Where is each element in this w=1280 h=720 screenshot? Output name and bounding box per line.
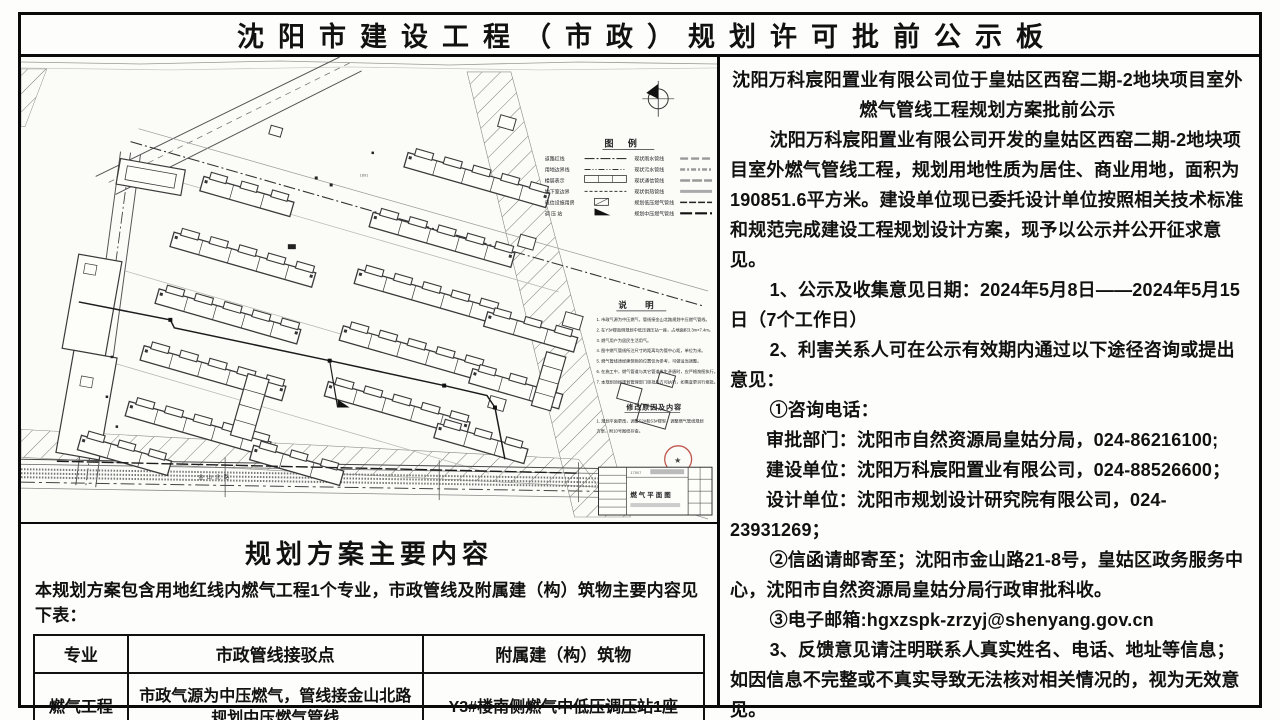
road-label: 金山北路 [198, 473, 232, 481]
notice-mail-address: ②信函请邮寄至；沈阳市金山路21-8号，皇姑区政务服务中心，沈阳市自然资源局皇姑… [730, 545, 1245, 605]
plan-table-header-row: 专业 市政管线接驳点 附属建（构）筑物 [34, 635, 704, 673]
notice-design-unit: 设计单位：沈阳市规划设计研究院有限公司，024-23931269； [730, 485, 1245, 545]
svg-text:电信设施用房: 电信设施用房 [545, 199, 575, 206]
site-plan-panel: 金山北路 [21, 57, 717, 524]
scan-edge-lines [21, 61, 717, 70]
plan-table-header-connection: 市政管线接驳点 [128, 635, 423, 673]
svg-text:楼层表示: 楼层表示 [545, 177, 565, 184]
svg-text:现状供热管线: 现状供热管线 [634, 188, 664, 195]
svg-text:现状污水管线: 现状污水管线 [634, 167, 664, 174]
plan-section-heading: 规划方案主要内容 [33, 534, 705, 571]
board-title: 沈阳市建设工程（市政）规划许可批前公示板 [21, 15, 1259, 57]
drawing-titleblock: ★ 17507 [599, 446, 713, 515]
svg-text:调 压 站: 调 压 站 [545, 210, 563, 217]
legend-right-labels: 现状雨水管线 现状污水管线 现状通信管线 现状供热管线 规划低压燃气管线 规划中… [634, 156, 674, 218]
notice-item-3: 3、反馈意见请注明联系人真实姓名、电话、地址等信息；如因信息不完整或不真实导致无… [730, 635, 1245, 720]
notice-board: 沈阳市建设工程（市政）规划许可批前公示板 [18, 12, 1262, 708]
survey-number-label: 1891 [360, 172, 370, 177]
site-plan-drawing: 金山北路 [21, 57, 717, 522]
map-legend: 图 例 道路红线 用地边界线 楼层表示 地下室边界 电信设施用房 调 压 站 [545, 138, 712, 218]
notice-board-page: 沈阳市建设工程（市政）规划许可批前公示板 [0, 0, 1280, 720]
map-revision: 修改原因及内容 1. 规划平面更改，调整S2#和S3#楼型，调整燃气管线规划 方… [597, 402, 704, 433]
legend-left-labels: 道路红线 用地边界线 楼层表示 地下室边界 电信设施用房 调 压 站 [545, 156, 575, 218]
legend-title: 图 例 [604, 138, 642, 149]
building-l-shape [44, 254, 133, 460]
board-body: 金山北路 [21, 57, 1259, 705]
notice-construction-unit: 建设单位：沈阳万科宸阳置业有限公司，024-88526600； [730, 455, 1245, 485]
svg-text:方案，附10号图纸存查。: 方案，附10号图纸存查。 [597, 427, 643, 433]
svg-text:现状雨水管线: 现状雨水管线 [634, 156, 664, 163]
titleblock-number: 17507 [630, 470, 641, 475]
notice-email: ③电子邮箱:hgxzspk-zrzyj@shenyang.gov.cn [730, 605, 1245, 635]
notice-item-2: 2、利害关系人可在公示有效期内通过以下途径咨询或提出意见： [730, 335, 1245, 395]
svg-text:3. 燃气用户为居民生活用气。: 3. 燃气用户为居民生活用气。 [597, 337, 652, 343]
revision-title: 修改原因及内容 [625, 402, 682, 411]
plan-table-header-structures: 附属建（构）筑物 [423, 635, 704, 673]
legend-left-samples [585, 159, 627, 216]
plan-table-header-specialty: 专业 [34, 635, 128, 673]
svg-text:6. 在施工中，燃气管道与其它管道发生矛盾时，应严格按图执行: 6. 在施工中，燃气管道与其它管道发生矛盾时，应严格按图执行。 [597, 368, 717, 374]
notes-title: 说 明 [618, 300, 661, 310]
plan-section-subtitle: 本规划方案包含用地红线内燃气工程1个专业，市政管线及附属建（构）筑物主要内容见下… [35, 576, 705, 626]
svg-text:地下室边界: 地下室边界 [545, 188, 570, 195]
red-stamp-star: ★ [674, 456, 681, 465]
svg-text:4. 图中燃气管线所注尺寸的距离均为管中心距，单位为米。: 4. 图中燃气管线所注尺寸的距离均为管中心距，单位为米。 [597, 347, 706, 353]
svg-text:规划低压燃气管线: 规划低压燃气管线 [634, 199, 674, 206]
left-column: 金山北路 [21, 57, 720, 705]
svg-text:1. 市政气源为中压燃气，管线接金山北路规划中压燃气管线。: 1. 市政气源为中压燃气，管线接金山北路规划中压燃气管线。 [597, 316, 710, 322]
svg-text:2. 在Y3#楼南侧规划中低压调压站一座，占地面积3.3m×: 2. 在Y3#楼南侧规划中低压调压站一座，占地面积3.3m×7.4m。 [597, 326, 713, 332]
svg-text:用地边界线: 用地边界线 [545, 167, 570, 174]
plan-table-cell-connection: 市政气源为中压燃气，管线接金山北路规划中压燃气管线 [128, 673, 423, 720]
plan-table-row: 燃气工程 市政气源为中压燃气，管线接金山北路规划中压燃气管线 Y3#楼南侧燃气中… [34, 673, 704, 720]
notice-paragraph: 沈阳万科宸阳置业有限公司开发的皇姑区西窑二期-2地块项目室外燃气管线工程，规划用… [730, 125, 1245, 275]
plan-table: 专业 市政管线接驳点 附属建（构）筑物 燃气工程 市政气源为中压燃气，管线接金山… [33, 634, 705, 720]
notice-text-panel: 沈阳万科宸阳置业有限公司位于皇姑区西窑二期-2地块项目室外燃气管线工程规划方案批… [720, 57, 1259, 705]
plan-table-cell-specialty: 燃气工程 [34, 673, 128, 720]
notice-item-phone-heading: ①咨询电话： [730, 395, 1245, 425]
svg-text:规划中压燃气管线: 规划中压燃气管线 [634, 210, 674, 217]
titleblock-drawing-title: 燃气平面图 [630, 490, 672, 499]
plan-summary-section: 规划方案主要内容 本规划方案包含用地红线内燃气工程1个专业，市政管线及附属建（构… [21, 524, 717, 720]
plan-table-cell-structures: Y3#楼南侧燃气中低压调压站1座 [423, 673, 704, 720]
svg-text:7. 本规划须经规划管理部门审批后方可执行，如需变更另行报批: 7. 本规划须经规划管理部门审批后方可执行，如需变更另行报批。 [597, 379, 717, 385]
map-notes: 说 明 1. 市政气源为中压燃气，管线接金山北路规划中压燃气管线。 2. 在Y3… [597, 300, 717, 385]
svg-text:1. 规划平面更改，调整S2#和S3#楼型，调整燃气管线规划: 1. 规划平面更改，调整S2#和S3#楼型，调整燃气管线规划 [597, 417, 704, 423]
north-arrow-icon [642, 81, 674, 117]
svg-text:现状通信管线: 现状通信管线 [634, 177, 664, 184]
notice-title: 沈阳万科宸阳置业有限公司位于皇姑区西窑二期-2地块项目室外燃气管线工程规划方案批… [730, 65, 1245, 125]
notice-approval-dept: 审批部门：沈阳市自然资源局皇姑分局，024-86216100; [730, 425, 1245, 455]
notice-body: 沈阳万科宸阳置业有限公司开发的皇姑区西窑二期-2地块项目室外燃气管线工程，规划用… [730, 125, 1245, 720]
notice-item-1: 1、公示及收集意见日期：2024年5月8日——2024年5月15日（7个工作日） [730, 275, 1245, 335]
svg-text:5. 燃气管线途经建筑物的位置仅为参考，可做适当调整。: 5. 燃气管线途经建筑物的位置仅为参考，可做适当调整。 [597, 358, 702, 364]
svg-text:道路红线: 道路红线 [545, 156, 565, 163]
legend-right-samples [680, 159, 712, 214]
